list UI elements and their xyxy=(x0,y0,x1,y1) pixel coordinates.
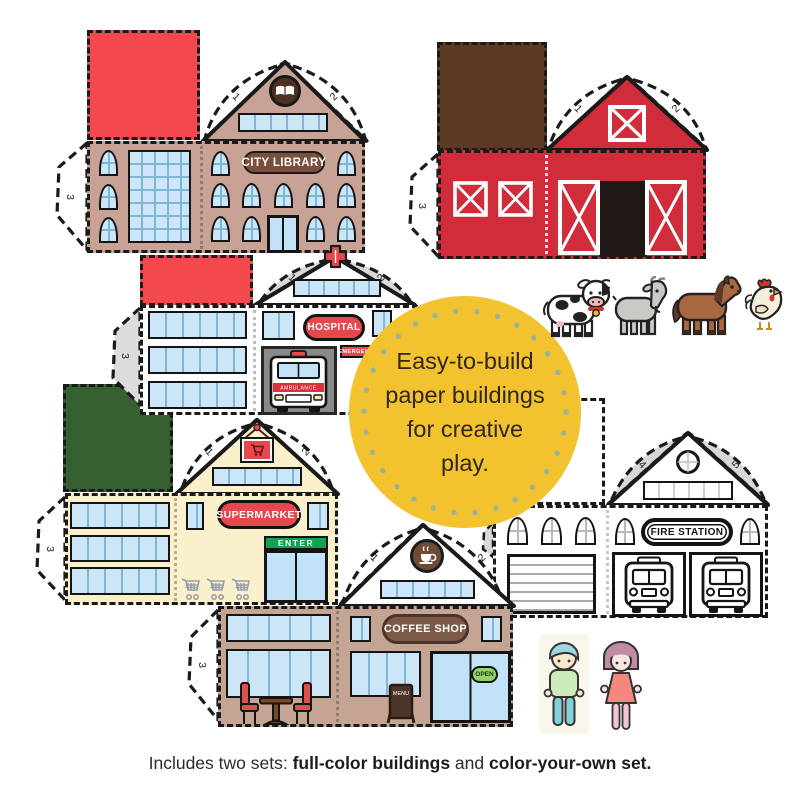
chicken-icon xyxy=(744,277,784,335)
cow-icon xyxy=(540,274,610,342)
girl-figure xyxy=(599,640,643,734)
caption-bold-2: color-your-own set. xyxy=(489,753,651,773)
girl-icon xyxy=(600,641,642,733)
menu-label: MENU xyxy=(393,691,409,697)
window xyxy=(481,616,502,642)
menu-board-icon: MENU xyxy=(382,680,420,724)
caption-bold-1: full-color buildings xyxy=(293,753,450,773)
goat-icon xyxy=(612,276,670,338)
coffee-shop-sign: COFFEE SHOP xyxy=(382,614,469,644)
flap-number: 1 xyxy=(368,552,381,565)
boy-icon xyxy=(540,636,588,732)
window xyxy=(226,614,331,642)
flap-number: 2 xyxy=(476,552,489,565)
horse-icon xyxy=(670,274,742,340)
boy-card xyxy=(539,634,589,734)
window xyxy=(350,616,371,642)
coffee-cup-icon xyxy=(410,539,444,573)
caption-joiner: and xyxy=(450,753,489,773)
table-and-chairs-icon xyxy=(238,682,314,726)
fold-line xyxy=(336,611,339,722)
window xyxy=(380,580,475,599)
open-sign: OPEN xyxy=(471,666,498,683)
caption-prefix: Includes two sets: xyxy=(149,753,293,773)
coffee-shop-door xyxy=(430,651,511,723)
paper-buildings-poster: 3 1 2 CITY LIBRARY xyxy=(0,0,800,800)
caption: Includes two sets: full-color buildings … xyxy=(0,753,800,774)
flap-number: 3 xyxy=(196,662,208,668)
